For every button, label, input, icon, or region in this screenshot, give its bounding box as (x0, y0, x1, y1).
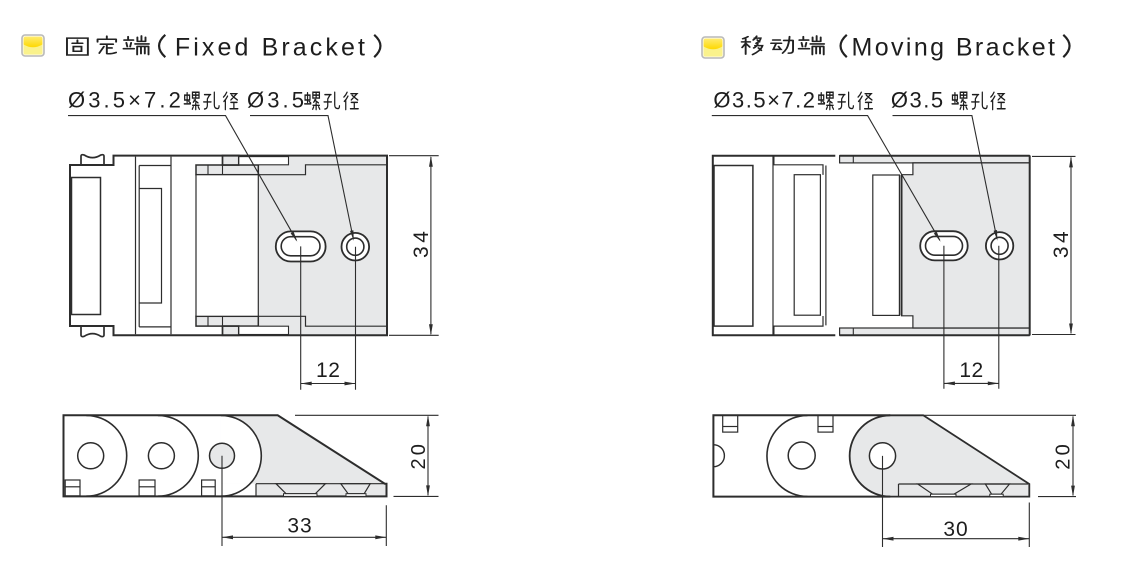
svg-text:12: 12 (316, 359, 340, 382)
svg-text:12: 12 (959, 359, 983, 382)
svg-text:Ø3.5: Ø3.5 (891, 88, 945, 113)
svg-text:34: 34 (410, 228, 433, 258)
svg-text:Ø3.5×7.2: Ø3.5×7.2 (68, 88, 184, 113)
svg-text:20: 20 (408, 441, 430, 470)
svg-text:34: 34 (1050, 228, 1073, 258)
svg-text:30: 30 (943, 518, 968, 541)
svg-text:20: 20 (1053, 441, 1075, 470)
svg-text:33: 33 (287, 515, 312, 538)
svg-text:Fixed Bracket: Fixed Bracket (175, 33, 368, 61)
svg-text:Ø3.5×7.2: Ø3.5×7.2 (713, 88, 816, 113)
svg-text:Ø3.5: Ø3.5 (247, 88, 307, 113)
svg-text:Moving Bracket: Moving Bracket (852, 33, 1058, 61)
